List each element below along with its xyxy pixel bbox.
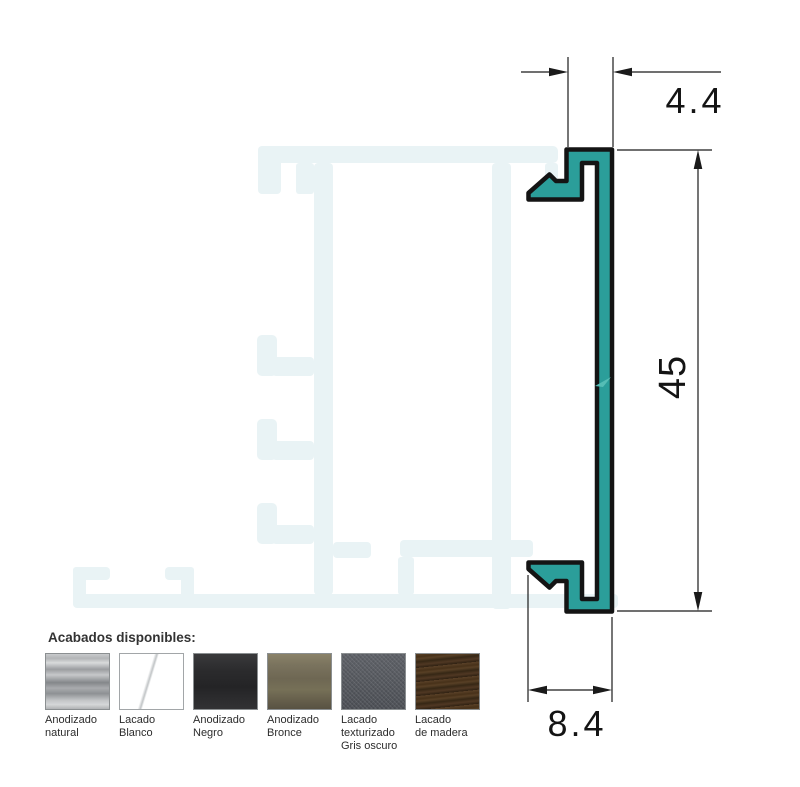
ghost-segment xyxy=(296,163,314,194)
finish-label: Lacado texturizado Gris oscuro xyxy=(341,714,406,753)
ghost-segment xyxy=(257,419,277,460)
swatch-anodizado-bronce xyxy=(267,653,332,710)
arrowhead xyxy=(694,150,703,169)
arrowhead xyxy=(694,592,703,611)
finish-anodizado-bronce: Anodizado Bronce xyxy=(267,653,332,753)
ghost-segment xyxy=(272,441,314,460)
ghost-segment xyxy=(398,557,414,595)
ghost-segment xyxy=(272,357,314,376)
swatch-row: Anodizado natural Lacado Blanco Anodizad… xyxy=(45,653,480,753)
ghost-segment xyxy=(73,594,618,608)
ghost-segment xyxy=(257,335,277,376)
arrowhead xyxy=(528,686,547,695)
swatch-lacado-blanco xyxy=(119,653,184,710)
finish-lacado-texturizado-gris-oscuro: Lacado texturizado Gris oscuro xyxy=(341,653,406,753)
arrowhead xyxy=(613,68,632,77)
finish-lacado-blanco: Lacado Blanco xyxy=(119,653,184,753)
ghost-segment xyxy=(181,567,194,607)
finishes-panel: Acabados disponibles: Anodizado natural … xyxy=(45,630,480,753)
finish-anodizado-natural: Anodizado natural xyxy=(45,653,110,753)
ghost-segment xyxy=(333,542,371,558)
finish-label: Anodizado Bronce xyxy=(267,714,332,740)
swatch-anodizado-negro xyxy=(193,653,258,710)
ghost-segment xyxy=(73,567,86,607)
ghost-segment xyxy=(400,540,533,557)
dimension-right-label: 45 xyxy=(652,355,694,399)
profile-cross-section xyxy=(529,150,613,612)
ghost-segment xyxy=(258,146,558,163)
ghost-segment xyxy=(258,146,281,194)
drawing-canvas: 4.4 45 8.4 Acabados disponibles: Anodiza… xyxy=(0,0,800,782)
finish-label: Lacado Blanco xyxy=(119,714,184,740)
arrowhead xyxy=(549,68,568,77)
ghost-segment xyxy=(314,163,333,595)
swatch-lacado-texturizado xyxy=(341,653,406,710)
swatch-lacado-de-madera xyxy=(415,653,480,710)
finish-lacado-de-madera: Lacado de madera xyxy=(415,653,480,753)
ghost-segment xyxy=(257,503,277,544)
swatch-anodizado-natural xyxy=(45,653,110,710)
finishes-title: Acabados disponibles: xyxy=(48,630,480,645)
finish-label: Anodizado natural xyxy=(45,714,110,740)
finish-anodizado-negro: Anodizado Negro xyxy=(193,653,258,753)
finish-label: Anodizado Negro xyxy=(193,714,258,740)
arrowhead xyxy=(593,686,612,695)
finish-label: Lacado de madera xyxy=(415,714,480,740)
dimension-top-label: 4.4 xyxy=(665,80,724,121)
ghost-profile xyxy=(73,146,618,609)
ghost-segment xyxy=(272,525,314,544)
dimension-bottom-label: 8.4 xyxy=(547,703,606,744)
